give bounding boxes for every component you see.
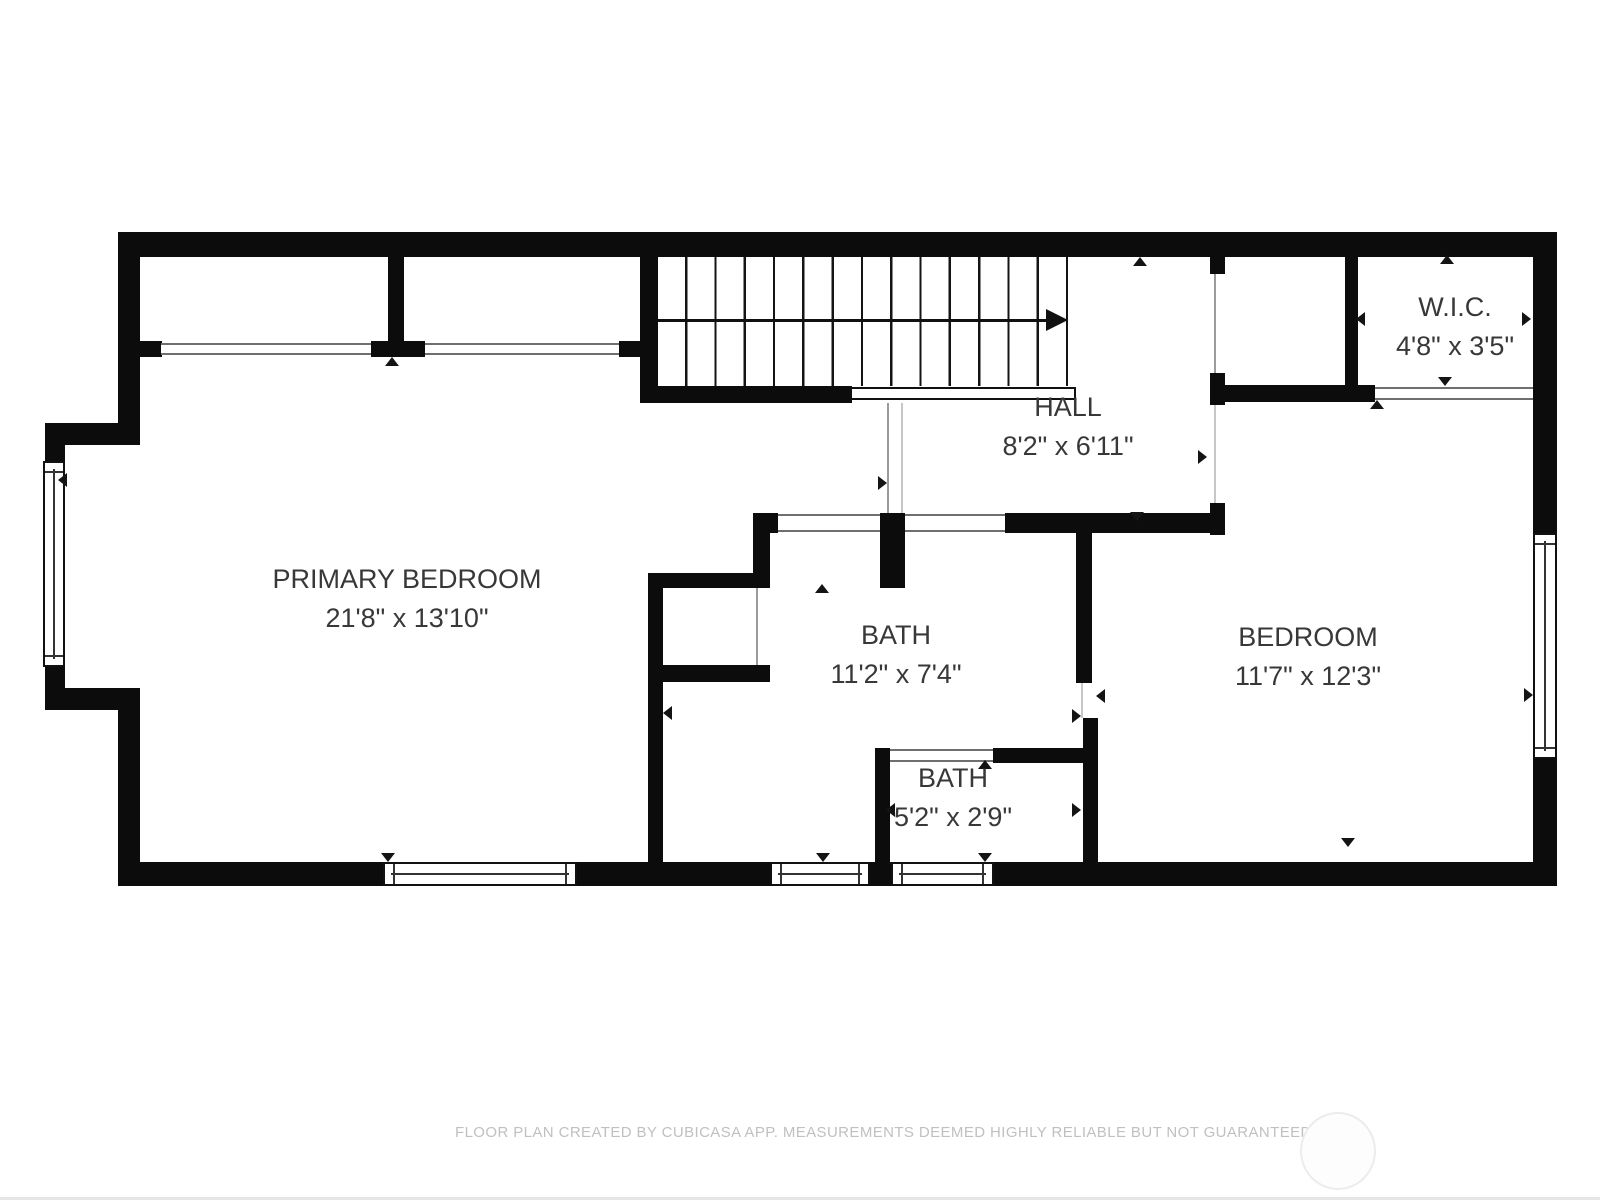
closet-door-line — [1214, 274, 1216, 373]
marker-bath-right-icon — [1072, 709, 1081, 723]
marker-bath-left-icon — [663, 706, 672, 720]
window-pane-line — [778, 873, 862, 875]
room-dimensions: 8'2" x 6'11" — [1002, 431, 1133, 461]
room-dimensions: 11'7" x 12'3" — [1235, 661, 1381, 691]
wall-alcove-top — [648, 573, 770, 588]
marker-closet-doors-icon — [385, 357, 399, 366]
wall-bay-jog-top — [45, 423, 140, 445]
window-cap — [901, 864, 903, 884]
hall-boundary-line — [887, 403, 889, 513]
wall-bedroom-left-lower — [1083, 718, 1098, 862]
wall-left-lower — [118, 708, 140, 886]
room-label-bedroom: BEDROOM 11'7" x 12'3" — [1235, 622, 1381, 691]
room-label-hall: HALL 8'2" x 6'11" — [1002, 392, 1133, 461]
window-cap — [780, 864, 782, 884]
wall-wic-bottom — [1210, 385, 1375, 402]
wall-bedroom-left-upper — [1076, 533, 1092, 683]
window-pane-line — [391, 873, 569, 875]
room-name: BEDROOM — [1235, 622, 1381, 652]
alcove-opening-line — [756, 588, 758, 665]
staircase-direction-line — [658, 319, 1050, 322]
window-pane-line — [53, 469, 55, 659]
marker-wic-bottom-icon — [1438, 377, 1452, 386]
door-wic — [1375, 387, 1533, 400]
closet-door-jamb — [371, 341, 425, 357]
window-bay-left — [43, 461, 65, 667]
window-bottom-bath — [770, 862, 870, 886]
window-bottom-primary — [383, 862, 577, 886]
closet-door-left — [161, 343, 371, 355]
marker-wic-right-icon — [1522, 312, 1531, 326]
marker-bay-window-icon — [58, 473, 67, 487]
marker-window-bath-small-icon — [978, 853, 992, 862]
wall-hall-right-bottom — [1210, 503, 1225, 535]
window-bottom-bath-small — [891, 862, 994, 886]
marker-bath-door-icon — [815, 584, 829, 593]
wall-hall-right-top — [1210, 257, 1225, 274]
room-dimensions: 21'8" x 13'10" — [272, 603, 541, 633]
wall-bath-small-top — [993, 748, 1083, 763]
marker-hall-left-icon — [878, 476, 887, 490]
wall-bath-top-pillar — [880, 513, 905, 588]
marker-window-bath-icon — [816, 853, 830, 862]
wall-left-upper — [118, 232, 140, 428]
wall-top — [118, 232, 1557, 257]
window-cap — [565, 864, 567, 884]
room-label-bath-small: BATH 5'2" x 2'9" — [894, 763, 1012, 832]
marker-window-primary-icon — [381, 853, 395, 862]
marker-bath-small-right-icon — [1072, 803, 1081, 817]
room-dimensions: 5'2" x 2'9" — [894, 802, 1012, 832]
wall-bay-jog-bottom — [45, 688, 140, 710]
closet-door-right — [425, 343, 619, 355]
window-cap — [982, 864, 984, 884]
wall-closet-divider — [388, 257, 404, 343]
staircase-direction-arrow-icon — [1046, 309, 1068, 331]
room-label-bath: BATH 11'2" x 7'4" — [830, 620, 961, 689]
marker-wic-door-icon — [1370, 400, 1384, 409]
closet-door-jamb — [138, 341, 162, 357]
window-cap — [858, 864, 860, 884]
window-cap — [1535, 747, 1555, 749]
cubicasa-badge-icon — [1300, 1112, 1376, 1190]
marker-hall-bottom-icon — [1130, 512, 1144, 521]
room-name: HALL — [1002, 392, 1133, 422]
marker-hall-right-icon — [1198, 450, 1207, 464]
wall-bath-top-jamb — [753, 513, 778, 533]
room-name: BATH — [830, 620, 961, 650]
marker-bedroom-door-icon — [1096, 689, 1105, 703]
door-hall-to-bath-2 — [905, 514, 1005, 532]
window-pane-line — [1544, 541, 1546, 751]
hall-boundary-line — [901, 403, 903, 513]
marker-wic-top-icon — [1440, 255, 1454, 264]
room-dimensions: 4'8" x 3'5" — [1396, 331, 1514, 361]
footer-disclaimer: FLOOR PLAN CREATED BY CUBICASA APP. MEAS… — [455, 1124, 1316, 1141]
wall-primary-bath-divider — [648, 573, 663, 863]
room-dimensions: 11'2" x 7'4" — [830, 659, 961, 689]
room-label-wic: W.I.C. 4'8" x 3'5" — [1396, 292, 1514, 361]
marker-hall-top-icon — [1133, 257, 1147, 266]
room-name: PRIMARY BEDROOM — [272, 564, 541, 594]
wall-stair-left — [640, 257, 658, 403]
wall-stair-bottom — [640, 386, 852, 403]
window-cap — [1535, 543, 1555, 545]
marker-wic-left-icon — [1356, 312, 1365, 326]
bedroom-entry-line — [1214, 405, 1216, 503]
room-name: BATH — [894, 763, 1012, 793]
window-cap — [45, 655, 63, 657]
window-cap — [393, 864, 395, 884]
room-name: W.I.C. — [1396, 292, 1514, 322]
window-pane-line — [899, 873, 986, 875]
bedroom-door-line — [1081, 683, 1083, 718]
wall-hall-bottom — [1005, 513, 1222, 533]
window-right-bedroom — [1533, 533, 1557, 759]
marker-window-bedroom-icon — [1524, 688, 1533, 702]
floor-plan: PRIMARY BEDROOM 21'8" x 13'10" HALL 8'2"… — [0, 0, 1600, 1200]
door-hall-to-bath — [778, 514, 880, 532]
room-label-primary-bedroom: PRIMARY BEDROOM 21'8" x 13'10" — [272, 564, 541, 633]
wall-alcove-bottom — [660, 665, 770, 682]
marker-bedroom-bottom-icon — [1341, 838, 1355, 847]
